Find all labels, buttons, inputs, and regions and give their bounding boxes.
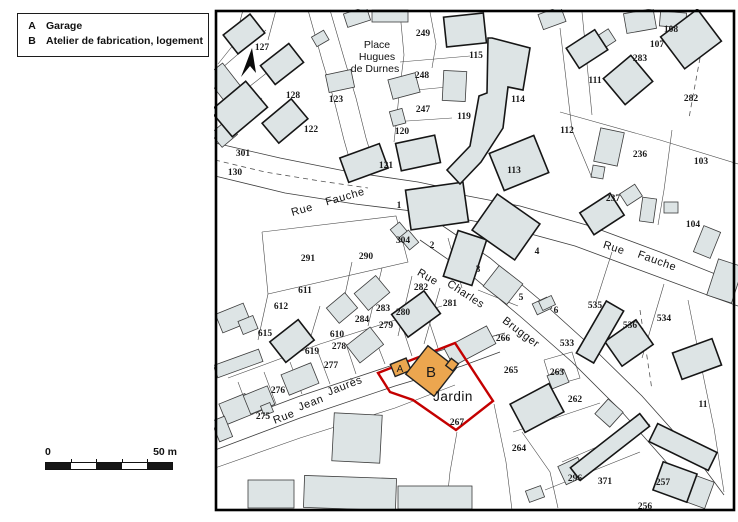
parcel-number-371: 371: [598, 477, 613, 487]
parcel-number-247: 247: [416, 105, 431, 115]
parcel-number-236: 236: [633, 150, 648, 160]
building-footprint: [332, 413, 382, 463]
parcel-number-281: 281: [443, 299, 458, 309]
scale-bar-labels: 0 50 m: [45, 446, 177, 458]
parcel-number-112: 112: [560, 126, 574, 136]
legend-label-a: Garage: [46, 19, 208, 34]
building-footprint: [444, 13, 487, 47]
legend: A Garage B Atelier de fabrication, logem…: [17, 13, 209, 57]
street-label: de Durnes: [351, 63, 399, 75]
building-footprint: [664, 202, 678, 213]
parcel-number-128: 128: [286, 91, 301, 101]
parcel-number-1: 1: [397, 201, 402, 211]
scale-tick: [147, 459, 148, 463]
legend-key-b: B: [18, 34, 46, 49]
parcel-number-278: 278: [332, 342, 347, 352]
parcel-number-290: 290: [359, 252, 374, 262]
parcel-number-533: 533: [560, 339, 575, 349]
building-footprint: [303, 475, 396, 510]
parcel-number-266: 266: [496, 334, 511, 344]
parcel-number-11: 11: [699, 400, 708, 410]
parcel-number-284: 284: [355, 315, 370, 325]
parcel-number-277: 277: [324, 361, 339, 371]
parcel-number-610: 610: [330, 330, 345, 340]
scale-start-label: 0: [45, 446, 51, 458]
building-footprint: [639, 197, 656, 223]
scale-segment: [147, 463, 172, 469]
parcel-number-283: 283: [376, 304, 391, 314]
parcel-number-4: 4: [535, 247, 540, 257]
scale-segment: [122, 463, 147, 469]
parcel-number-264: 264: [512, 444, 527, 454]
building-label-b: B: [426, 364, 436, 381]
region-label-jardin: Jardin: [433, 389, 473, 404]
parcel-number-249: 249: [416, 29, 431, 39]
map-canvas: 1271281231223011301212491152482471191201…: [214, 9, 738, 514]
parcel-number-248: 248: [415, 71, 430, 81]
building-footprint: [248, 480, 294, 508]
scale-tick: [122, 459, 123, 463]
scale-segment: [96, 463, 121, 469]
parcel-number-534: 534: [657, 314, 672, 324]
legend-row-b: B Atelier de fabrication, logement: [18, 34, 208, 49]
parcel-number-123: 123: [329, 95, 344, 105]
parcel-number-127: 127: [255, 43, 270, 53]
parcel-number-237: 237: [606, 194, 621, 204]
parcel-number-103: 103: [694, 157, 709, 167]
parcel-number-108: 108: [664, 25, 679, 35]
parcel-number-120: 120: [395, 127, 410, 137]
scale-tick: [96, 459, 97, 463]
parcel-number-282: 282: [414, 283, 429, 293]
scale-segment: [46, 463, 71, 469]
building-footprint: [442, 70, 467, 101]
parcel-number-107: 107: [650, 40, 665, 50]
parcel-number-619: 619: [305, 347, 320, 357]
parcel-number-262: 262: [568, 395, 583, 405]
scale-tick: [71, 459, 72, 463]
parcel-number-276: 276: [271, 386, 286, 396]
parcel-number-111: 111: [588, 76, 601, 86]
building-label-a: A: [397, 364, 404, 375]
parcel-number-296: 296: [568, 474, 583, 484]
parcel-number-611: 611: [298, 286, 312, 296]
parcel-number-2: 2: [430, 241, 435, 251]
parcel-number-3: 3: [476, 265, 481, 275]
street-label: Place: [364, 39, 390, 51]
parcel-number-115: 115: [469, 51, 483, 61]
parcel-number-119: 119: [457, 112, 471, 122]
street-label: Hugues: [359, 51, 395, 63]
parcel-number-280: 280: [396, 308, 411, 318]
parcel-number-283: 283: [633, 54, 648, 64]
building-footprint: [405, 182, 468, 230]
legend-row-a: A Garage: [18, 19, 208, 34]
parcel-number-291: 291: [301, 254, 316, 264]
parcel-number-275: 275: [256, 412, 271, 422]
parcel-number-5: 5: [519, 293, 524, 303]
cadastral-map-page: A Garage B Atelier de fabrication, logem…: [0, 0, 738, 522]
parcel-number-535: 535: [588, 301, 603, 311]
legend-key-a: A: [18, 19, 46, 34]
parcel-number-121: 121: [379, 161, 394, 171]
parcel-number-104: 104: [686, 220, 701, 230]
parcel-number-267: 267: [450, 418, 465, 428]
parcel-number-113: 113: [507, 166, 521, 176]
parcel-number-114: 114: [511, 95, 525, 105]
parcel-number-257: 257: [656, 478, 671, 488]
scale-bar: 0 50 m: [45, 446, 177, 470]
parcel-number-279: 279: [379, 321, 394, 331]
parcel-number-122: 122: [304, 125, 319, 135]
parcel-number-301: 301: [236, 149, 251, 159]
parcel-number-615: 615: [258, 329, 273, 339]
parcel-number-612: 612: [274, 302, 289, 312]
parcel-number-263: 263: [550, 368, 565, 378]
parcel-number-265: 265: [504, 366, 519, 376]
parcel-number-536: 536: [623, 321, 638, 331]
building-footprint: [591, 165, 605, 179]
parcel-number-6: 6: [554, 306, 559, 316]
parcel-number-130: 130: [228, 168, 243, 178]
parcel-number-304: 304: [396, 236, 411, 246]
legend-label-b: Atelier de fabrication, logement: [46, 34, 208, 49]
parcel-number-282: 282: [684, 94, 699, 104]
building-footprint: [398, 486, 472, 509]
scale-segment: [71, 463, 96, 469]
scale-end-label: 50 m: [153, 446, 177, 458]
scale-bar-track: [45, 462, 173, 470]
